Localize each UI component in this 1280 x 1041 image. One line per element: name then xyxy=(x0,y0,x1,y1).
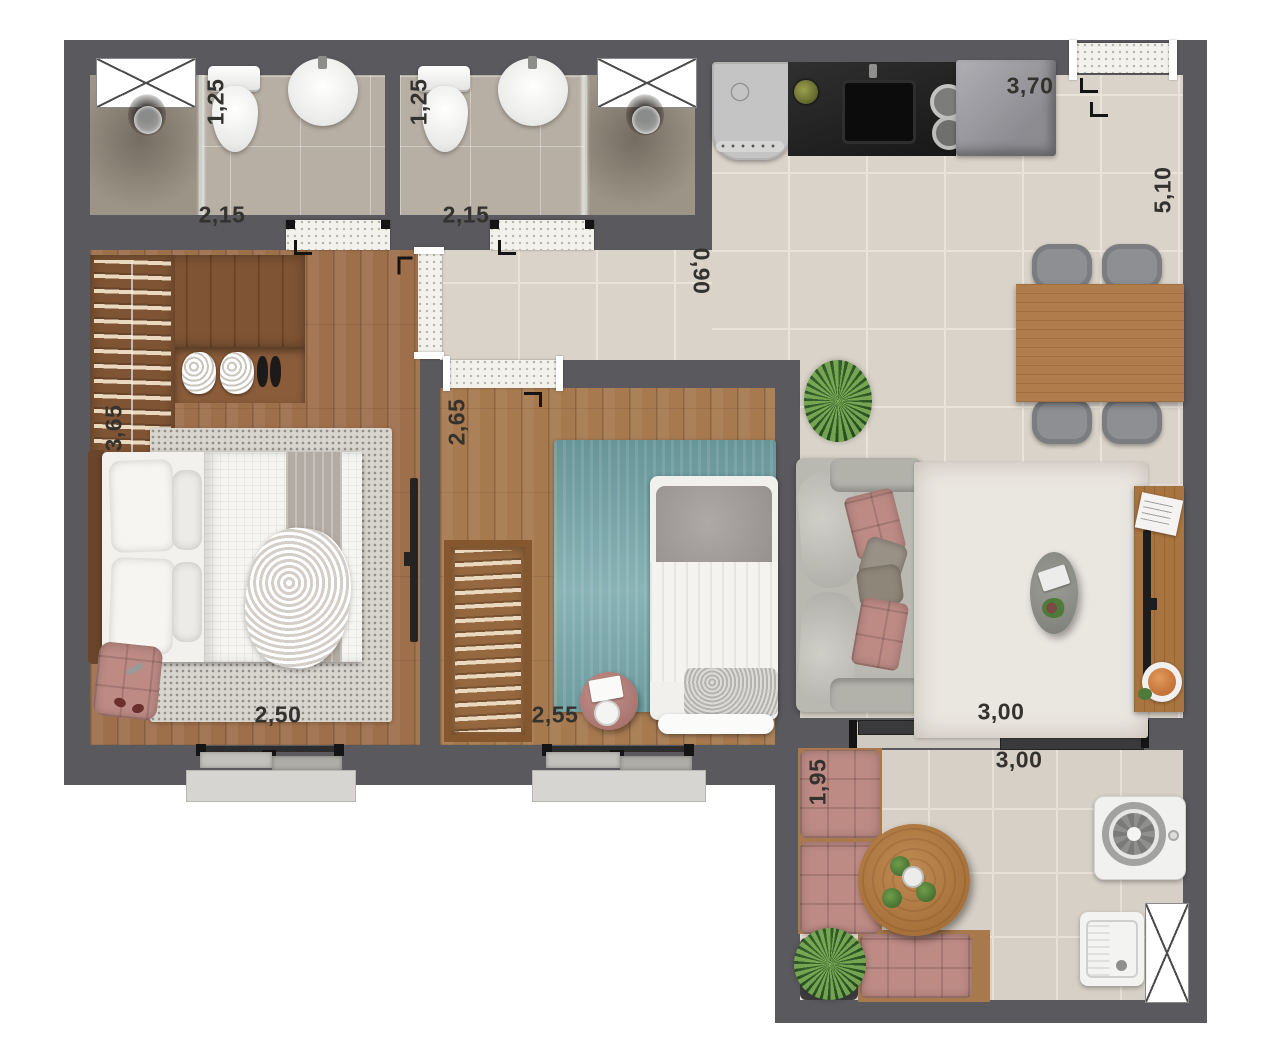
door-jamb xyxy=(286,220,295,229)
wall-left xyxy=(64,40,90,785)
table-cup xyxy=(902,866,924,888)
slider-cap xyxy=(849,720,857,748)
faucet-icon xyxy=(1116,960,1127,971)
dim-hall-width: 0,90 xyxy=(688,248,715,295)
tv-bracket xyxy=(1149,598,1157,610)
door-swing-icon xyxy=(1090,102,1108,117)
bedroom2-door xyxy=(448,360,558,388)
wall-right xyxy=(1183,40,1207,1023)
window-sill xyxy=(532,770,706,802)
door-jamb xyxy=(443,356,450,391)
shaft-box-balcony xyxy=(1145,903,1189,1003)
window-pane xyxy=(546,752,620,768)
window-sill xyxy=(186,770,356,802)
door-jamb xyxy=(381,220,390,229)
bed-pillow xyxy=(108,459,175,553)
door-jamb xyxy=(556,356,563,391)
bed-duvet xyxy=(650,562,778,682)
door-swing-icon xyxy=(498,240,516,255)
dim-bathroom2-width: 1,25 xyxy=(406,79,433,126)
faucet-icon xyxy=(869,64,877,78)
stove-knobs xyxy=(716,141,784,152)
washer-hub xyxy=(1127,827,1141,841)
bed-footboard xyxy=(658,714,774,734)
door-jamb xyxy=(1169,40,1177,80)
dim-bathroom2-length: 2,15 xyxy=(443,202,490,229)
folded-clothes xyxy=(220,352,254,394)
window-cap xyxy=(334,744,344,756)
dim-living-width: 3,00 xyxy=(978,699,1025,726)
hallway-floor xyxy=(440,250,712,362)
door-jamb xyxy=(414,247,444,254)
table-plant xyxy=(882,888,902,908)
decor-plant xyxy=(1138,688,1152,700)
bathroom2-door xyxy=(490,220,594,250)
bed-pillow xyxy=(108,557,175,655)
shoes xyxy=(257,356,268,387)
window-pane xyxy=(200,752,272,768)
floor-plan: 1,25 2,15 1,25 2,15 3,70 5,10 0,90 3,65 … xyxy=(0,0,1280,1041)
wall-bathroom2-kitchen xyxy=(695,75,712,215)
dim-kitchen-length: 3,70 xyxy=(1007,73,1054,100)
bench-cushion xyxy=(860,934,972,998)
wall-balcony-bottom xyxy=(775,1000,1205,1023)
bathroom1-door xyxy=(286,220,390,250)
window-cap xyxy=(684,744,694,756)
faucet-icon xyxy=(318,56,327,69)
bed-pillow xyxy=(172,562,202,642)
dim-bathroom1-width: 1,25 xyxy=(203,79,230,126)
sofa-armrest xyxy=(830,458,922,492)
wall-between-bathrooms xyxy=(385,75,400,215)
door-swing-icon xyxy=(524,392,542,407)
coffee-table xyxy=(1030,552,1078,634)
laundry-basin xyxy=(1086,920,1138,978)
door-jamb xyxy=(414,352,444,359)
dim-bedroom1-depth: 3,65 xyxy=(101,405,128,452)
bedroom1-door xyxy=(418,253,442,353)
table-lamp xyxy=(594,700,620,726)
dim-bedroom1-width: 2,50 xyxy=(255,702,302,729)
dim-balcony-width: 3,00 xyxy=(996,747,1043,774)
kitchen-sink xyxy=(842,80,916,144)
balcony-plant xyxy=(794,928,866,1000)
shower-drain xyxy=(134,106,162,134)
bed-pillow xyxy=(172,470,202,550)
door-jamb xyxy=(490,220,499,229)
dim-bedroom2-depth: 2,65 xyxy=(444,399,471,446)
dining-table xyxy=(1016,284,1184,402)
window-pane xyxy=(620,756,692,770)
counter-plant xyxy=(794,80,818,104)
door-jamb xyxy=(1069,40,1077,80)
tv-bracket xyxy=(404,552,412,566)
door-swing-icon xyxy=(294,240,312,255)
sofa-armrest xyxy=(830,678,922,712)
dim-kitchen-depth: 5,10 xyxy=(1150,167,1177,214)
folded-blanket xyxy=(684,668,778,716)
folded-clothes xyxy=(182,352,216,394)
window-pane xyxy=(272,756,342,770)
pouf xyxy=(92,641,163,721)
hanging-clothes xyxy=(455,550,521,732)
floor-plant xyxy=(804,360,872,442)
dining-chair xyxy=(1032,398,1092,444)
dim-balcony-depth: 1,95 xyxy=(805,759,832,806)
entry-door xyxy=(1076,43,1170,73)
shower-drain xyxy=(632,106,660,134)
door-swing-icon xyxy=(398,257,413,275)
dim-bedroom2-width: 2,55 xyxy=(532,702,579,729)
shoes xyxy=(270,356,281,387)
coffee-table-plant xyxy=(1042,598,1066,618)
dim-bathroom1-length: 2,15 xyxy=(199,202,246,229)
bathroom2-shower-glass xyxy=(582,75,587,217)
door-jamb xyxy=(585,220,594,229)
door-swing-icon xyxy=(1080,78,1098,93)
washer-dial xyxy=(1168,830,1179,841)
decor-fruit-bowl xyxy=(1148,668,1176,696)
dining-chair xyxy=(1102,398,1162,444)
faucet-icon xyxy=(528,56,537,69)
